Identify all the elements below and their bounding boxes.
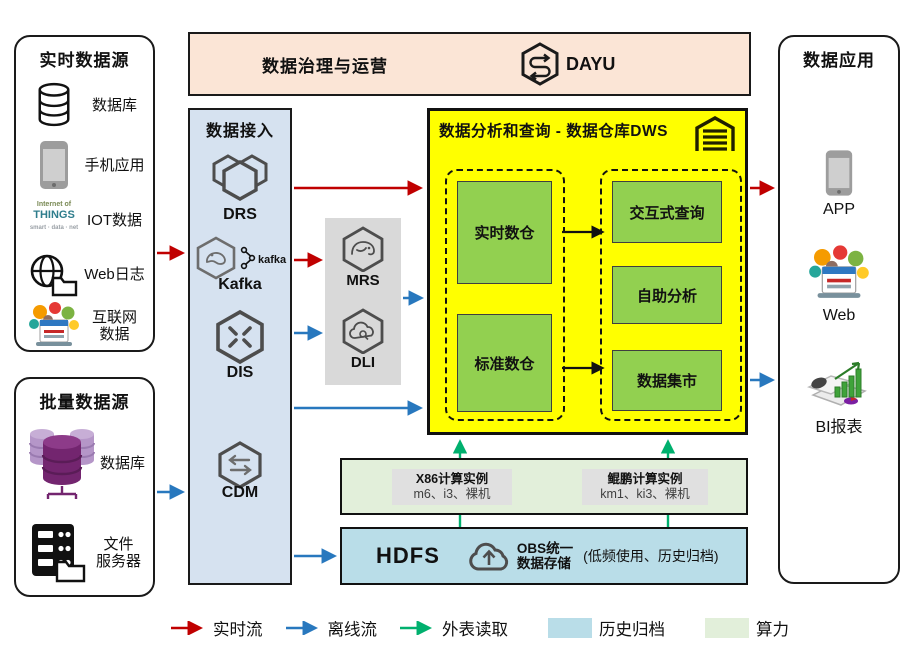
ingestion-column: 数据接入 DRS kafka <box>188 108 292 585</box>
service-label-dli: DLI <box>325 354 401 371</box>
service-label-drs: DRS <box>190 206 290 224</box>
legend-label-external: 外表读取 <box>442 616 508 640</box>
iot-wordcloud-icon: Internet of THINGS smart · data · net <box>26 197 82 243</box>
dli-icon <box>325 308 401 354</box>
list-item: Web日志 <box>26 248 147 300</box>
bi-chart-icon <box>807 357 871 409</box>
source-label: 手机应用 <box>82 157 147 174</box>
obs-label-line: 数据存储 <box>517 556 571 571</box>
list-item: 互联网 数据 <box>26 300 147 352</box>
compute-swatch <box>705 618 749 638</box>
list-item: Internet of THINGS smart · data · net IO… <box>26 193 147 247</box>
governance-banner: 数据治理与运营 DAYU <box>188 32 751 96</box>
dis-icon <box>190 308 290 366</box>
source-label-line: 文件 <box>103 536 133 553</box>
mrs-icon <box>325 226 401 272</box>
legend-label-realtime: 实时流 <box>213 616 263 640</box>
standard-warehouse-box: 标准数仓 <box>457 314 552 412</box>
compute-box: X86计算实例 m6、i3、裸机 鲲鹏计算实例 km1、ki3、裸机 <box>340 458 748 515</box>
file-server-icon <box>26 522 90 584</box>
legend-label-offline: 离线流 <box>328 616 378 640</box>
list-item: 数据库 <box>26 77 147 133</box>
source-label: 文件 服务器 <box>90 536 147 570</box>
drs-icon <box>190 148 290 206</box>
list-item: 手机应用 <box>26 139 147 191</box>
legend: 实时流 离线流 外表读取 历史归档 算力 <box>170 612 789 644</box>
data-mart-box: 数据集市 <box>612 350 722 411</box>
kafka-logo-text: kafka <box>258 254 287 266</box>
app-label: BI报表 <box>815 413 862 437</box>
web-collage-icon <box>808 245 870 303</box>
app-label: APP <box>823 201 855 219</box>
dayu-product: DAYU <box>518 41 615 87</box>
ingestion-title: 数据接入 <box>190 117 290 141</box>
iot-word: THINGS <box>33 209 75 221</box>
realtime-sources-panel: 实时数据源 数据库 手机应用 <box>14 35 155 352</box>
instance-specs: m6、i3、裸机 <box>413 487 490 502</box>
service-label-mrs: MRS <box>325 272 401 289</box>
iot-word: smart · data · net <box>30 225 78 231</box>
realtime-flow-arrow-icon <box>170 621 206 635</box>
purple-database-cluster-icon <box>26 420 98 506</box>
service-label-cdm: CDM <box>190 484 290 502</box>
source-label: Web日志 <box>82 266 147 283</box>
instance-name: 鲲鹏计算实例 <box>607 472 682 487</box>
list-item: 文件 服务器 <box>26 519 147 587</box>
source-label-line: 数据 <box>99 326 129 343</box>
obs-cloud-icon <box>466 538 512 574</box>
self-service-analysis-box: 自助分析 <box>612 266 722 324</box>
database-icon <box>26 80 82 130</box>
app-label: Web <box>823 307 856 325</box>
storage-note: (低频使用、历史归档) <box>583 546 718 566</box>
list-item: APP <box>780 149 898 219</box>
instance-name: X86计算实例 <box>416 472 488 487</box>
applications-panel: 数据应用 APP <box>778 35 900 584</box>
source-label-line: 互联网 <box>92 309 137 326</box>
source-label: 数据库 <box>82 97 147 114</box>
iot-word: Internet of <box>37 201 71 208</box>
interactive-query-box: 交互式查询 <box>612 181 722 243</box>
cdm-icon <box>190 440 290 490</box>
obs-label: OBS统一 数据存储 <box>517 541 573 571</box>
mobile-phone-icon <box>26 140 82 190</box>
archive-swatch <box>548 618 592 638</box>
dws-title: 数据分析和查询 - 数据仓库DWS <box>439 119 668 141</box>
x86-instance-box: X86计算实例 m6、i3、裸机 <box>392 469 512 505</box>
instance-specs: km1、ki3、裸机 <box>600 487 690 502</box>
mobile-phone-icon <box>823 149 855 197</box>
source-label: IOT数据 <box>82 212 147 229</box>
list-item: Web <box>780 245 898 325</box>
obs-label-line: OBS统一 <box>517 541 573 556</box>
list-item: BI报表 <box>780 357 898 437</box>
source-label: 互联网 数据 <box>82 309 147 343</box>
list-item: 数据库 <box>26 415 147 511</box>
architecture-diagram: 实时数据源 数据库 手机应用 <box>0 0 914 651</box>
dws-box: 数据分析和查询 - 数据仓库DWS 实时数仓 标准数仓 交互式查询 自助分析 数… <box>427 108 748 435</box>
kunpeng-instance-box: 鲲鹏计算实例 km1、ki3、裸机 <box>582 469 708 505</box>
source-label-line: 服务器 <box>96 553 141 570</box>
internet-collage-icon <box>26 302 82 350</box>
service-label-dis: DIS <box>190 364 290 382</box>
legend-label-compute: 算力 <box>756 616 789 640</box>
offline-flow-arrow-icon <box>285 621 321 635</box>
processing-box: MRS DLI <box>325 218 401 385</box>
legend-label-archive: 历史归档 <box>599 616 665 640</box>
warehouse-icon <box>693 115 737 153</box>
dayu-label: DAYU <box>566 54 615 75</box>
realtime-sources-title: 实时数据源 <box>16 46 153 71</box>
service-label-kafka: Kafka <box>190 276 290 294</box>
kafka-icon: kafka <box>190 236 290 280</box>
applications-title: 数据应用 <box>780 46 898 71</box>
storage-box: HDFS OBS统一 数据存储 (低频使用、历史归档) <box>340 527 748 585</box>
governance-title: 数据治理与运营 <box>262 52 388 77</box>
realtime-warehouse-box: 实时数仓 <box>457 181 552 284</box>
external-read-arrow-icon <box>399 621 435 635</box>
dayu-hexagon-icon <box>518 41 562 87</box>
batch-sources-panel: 批量数据源 <box>14 377 155 597</box>
globe-folder-icon <box>26 251 82 297</box>
source-label: 数据库 <box>98 455 147 472</box>
hdfs-label: HDFS <box>376 543 440 569</box>
batch-sources-title: 批量数据源 <box>16 388 153 413</box>
